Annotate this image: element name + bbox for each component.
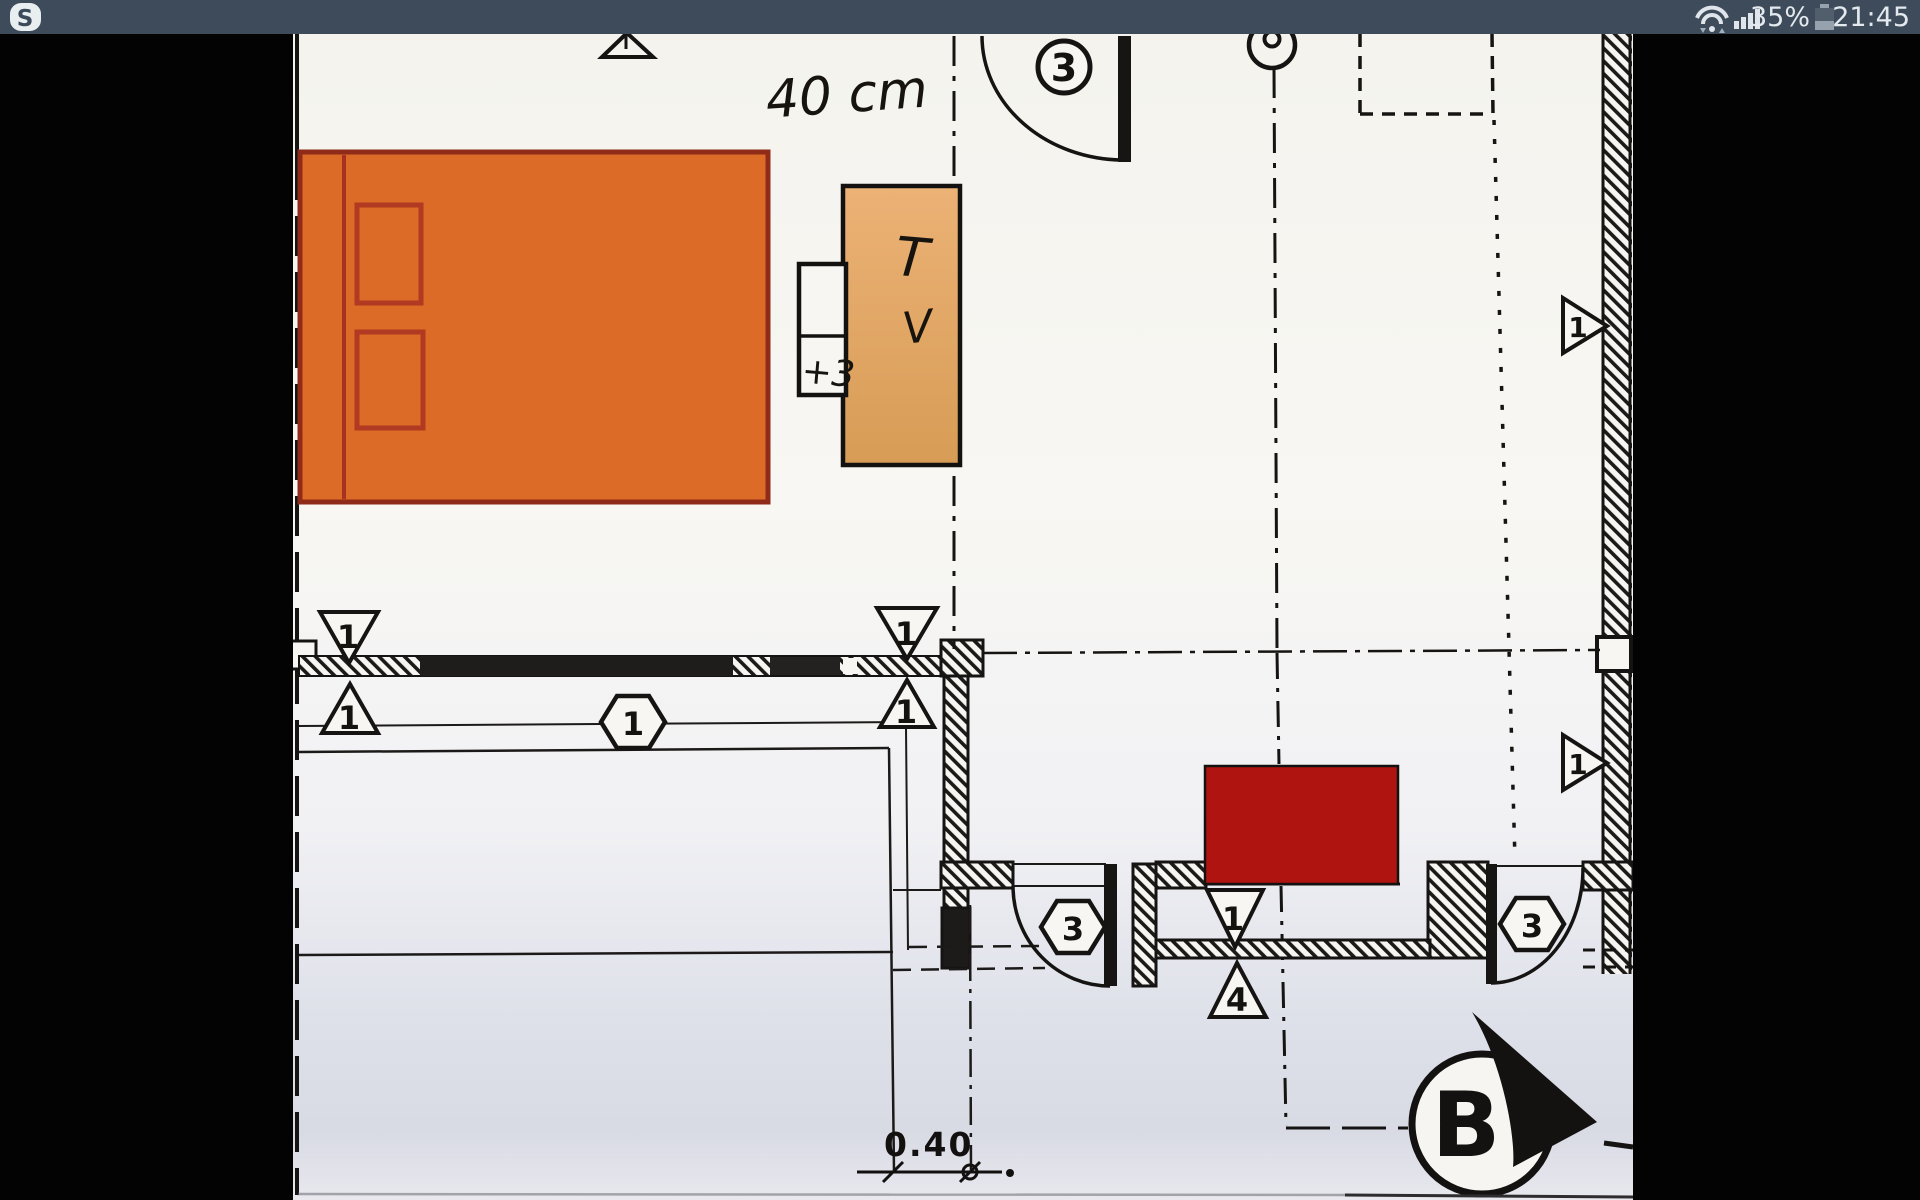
marker-number: 1 [1568, 748, 1587, 781]
marker-number: 1 [1222, 900, 1244, 938]
hex-marker-middle: 1 [601, 696, 665, 748]
screenshot-canvas: 3 T V +3 40 cm [0, 0, 1920, 1200]
marker-number: 3 [1062, 910, 1084, 948]
marker-number: 1 [1568, 311, 1587, 344]
status-bar[interactable]: S 35% 21:45 [0, 0, 1920, 34]
marker-number: 1 [895, 693, 917, 731]
door-badge-number: 3 [1051, 46, 1077, 90]
marker-number: 1 [337, 618, 359, 656]
marker-number: 1 [895, 615, 917, 653]
floor-plan: 3 T V +3 40 cm [290, 22, 1633, 1200]
tablet-screen: 3 T V +3 40 cm [0, 0, 1920, 1200]
marker-number: 1 [622, 705, 644, 743]
door-leaf [1118, 36, 1131, 162]
marker-number: 4 [1226, 981, 1248, 1019]
section-letter: B [1432, 1073, 1501, 1178]
tv-stand: T V [843, 186, 960, 465]
left-letterbox [0, 34, 293, 1200]
hex-marker-door-right: 3 [1500, 898, 1564, 950]
marker-number: 3 [1521, 907, 1543, 945]
skype-icon[interactable]: S [10, 3, 41, 32]
hex-marker-door-left: 3 [1041, 901, 1105, 953]
dimension-value: 0.40 [884, 1125, 973, 1164]
right-letterbox [1633, 34, 1920, 1200]
marker-number: 1 [338, 699, 360, 737]
wall-junction-box [1597, 637, 1631, 671]
bed [300, 152, 768, 502]
nightstand: +3 [799, 264, 857, 396]
clock-time: 21:45 [1832, 2, 1910, 33]
battery-percent: 35% [1750, 2, 1810, 33]
dimension-note-40cm: 40 cm [764, 60, 930, 131]
status-bar-bg [0, 0, 1920, 34]
right-wall [1597, 34, 1632, 974]
mid-vertical-wall [942, 676, 970, 968]
red-furniture-block [1205, 766, 1398, 884]
skype-letter: S [17, 6, 34, 32]
socket-note: +3 [800, 350, 856, 395]
door-leaf [1486, 864, 1497, 984]
